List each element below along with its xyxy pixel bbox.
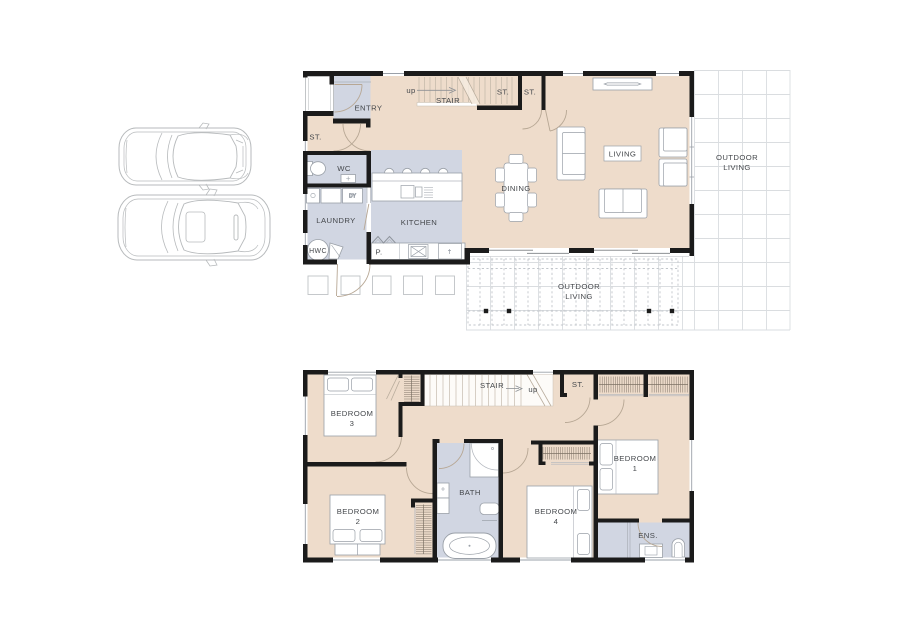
- svg-text:LIVING: LIVING: [723, 163, 751, 172]
- svg-text:4: 4: [554, 517, 559, 526]
- svg-text:ST.: ST.: [572, 380, 584, 389]
- svg-text:ST.: ST.: [309, 133, 321, 142]
- svg-text:1: 1: [633, 464, 638, 473]
- svg-text:WC: WC: [337, 164, 351, 173]
- svg-text:LAUNDRY: LAUNDRY: [316, 216, 355, 225]
- svg-text:3: 3: [350, 419, 355, 428]
- svg-text:BATH: BATH: [459, 488, 481, 497]
- svg-text:2: 2: [356, 517, 361, 526]
- svg-text:BEDROOM: BEDROOM: [331, 409, 374, 418]
- svg-text:DY: DY: [349, 194, 357, 200]
- svg-text:OUTDOOR: OUTDOOR: [558, 282, 600, 291]
- svg-text:KITCHEN: KITCHEN: [401, 218, 438, 227]
- svg-text:ST.: ST.: [524, 88, 536, 97]
- svg-text:LIVING: LIVING: [565, 292, 593, 301]
- svg-text:P.: P.: [375, 248, 382, 257]
- svg-text:OUTDOOR: OUTDOOR: [716, 153, 758, 162]
- svg-text:up: up: [528, 385, 537, 394]
- svg-text:HWC: HWC: [309, 248, 327, 255]
- svg-text:STAIR: STAIR: [436, 96, 460, 105]
- svg-text:ST.: ST.: [497, 88, 509, 97]
- svg-text:BEDROOM: BEDROOM: [337, 507, 380, 516]
- svg-text:ENTRY: ENTRY: [355, 104, 383, 113]
- svg-text:up: up: [406, 86, 415, 95]
- svg-text:ENS.: ENS.: [638, 531, 658, 540]
- svg-text:BEDROOM: BEDROOM: [614, 454, 657, 463]
- svg-text:BEDROOM: BEDROOM: [535, 507, 578, 516]
- svg-text:LIVING: LIVING: [609, 150, 637, 159]
- svg-text:DINING: DINING: [501, 184, 530, 193]
- svg-text:STAIR: STAIR: [480, 381, 504, 390]
